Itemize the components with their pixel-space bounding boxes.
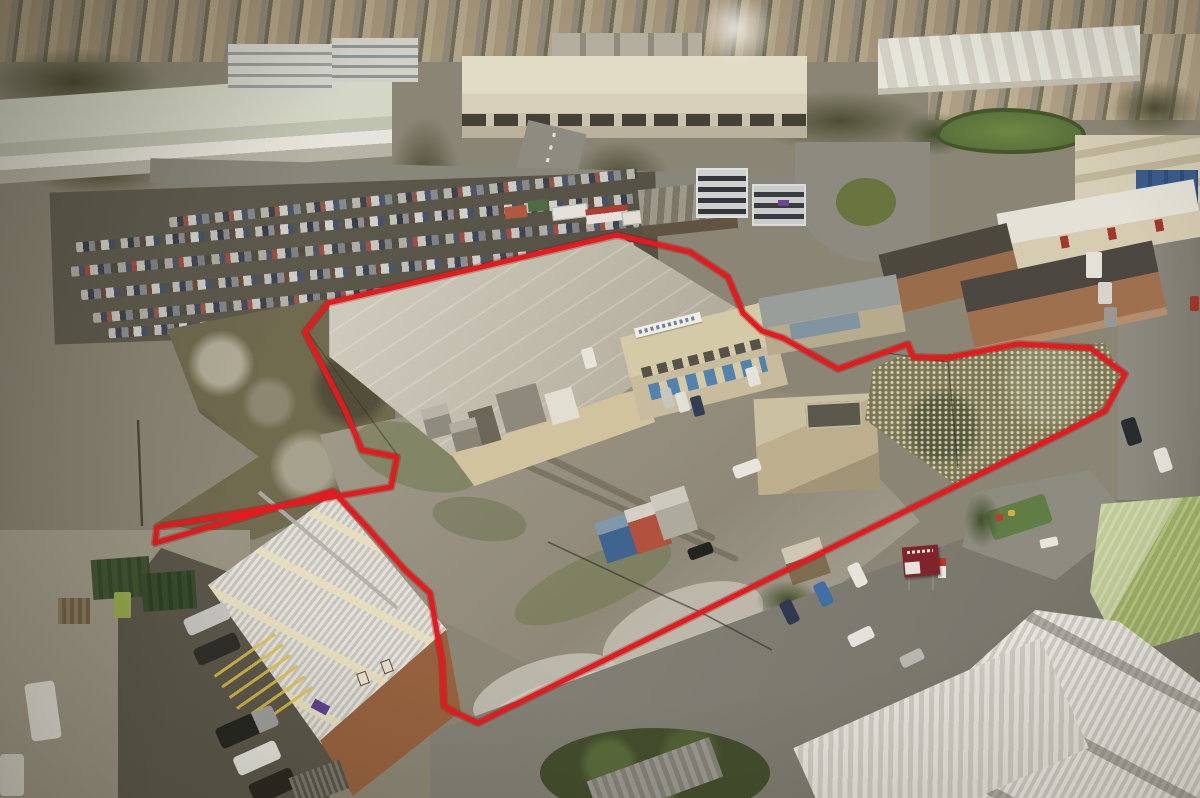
car-white-corner: [0, 754, 24, 796]
compound-item-red: [996, 514, 1003, 521]
office-block-a: [228, 44, 332, 90]
car-east-road-2: [1104, 307, 1117, 327]
van-east-road: [1086, 252, 1102, 278]
office-cube-1: [696, 168, 748, 218]
aerial-photo: [0, 0, 1200, 798]
tan-store-roof-inset: [805, 401, 862, 430]
pallet-clutter: [58, 598, 90, 624]
compound-item-yellow: [1008, 510, 1015, 516]
factory-center-window-band: [462, 114, 807, 126]
car-east-road-red: [1190, 296, 1199, 311]
car-east-road-1: [1098, 282, 1112, 304]
container-green-2: [141, 570, 198, 612]
portaloo-green: [114, 592, 131, 618]
grass-parcel-east: [865, 340, 1125, 485]
agent-board-panel: [905, 561, 921, 574]
site-rear-annex: [758, 274, 906, 355]
verge-island-right: [836, 178, 896, 226]
container-green: [527, 199, 548, 212]
utility-pole: [138, 420, 142, 526]
compound-plants: [964, 492, 1000, 548]
office-block-b: [332, 38, 418, 82]
container-orange: [504, 205, 527, 219]
trees-right-edge: [1110, 80, 1200, 136]
purple-plaque-office: [778, 200, 789, 206]
